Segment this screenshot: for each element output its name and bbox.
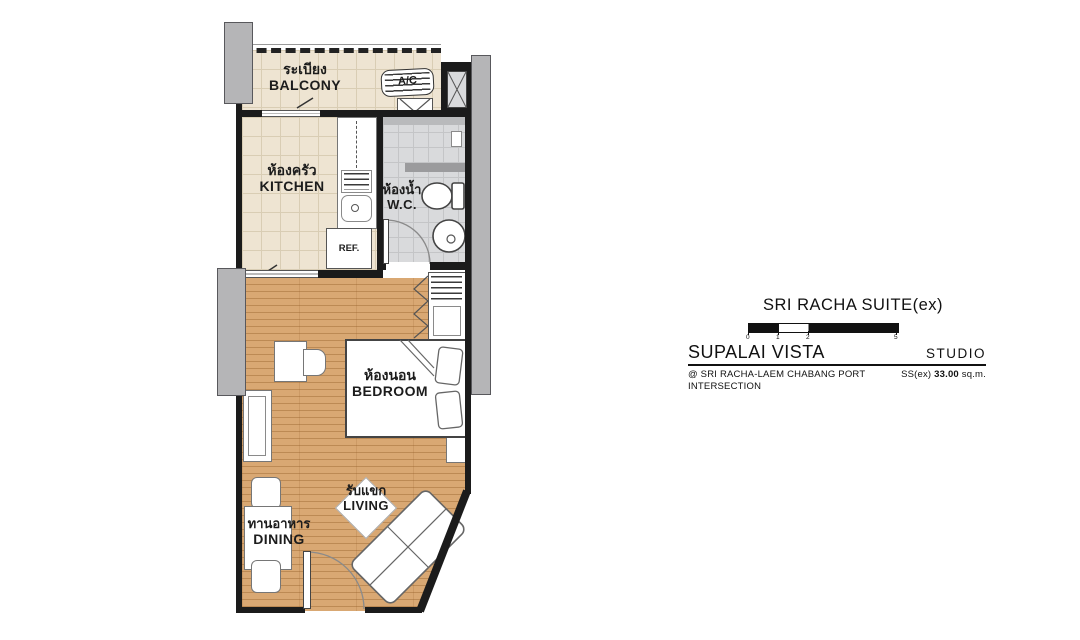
column-mid-left [217,268,246,396]
wall-kitchen-bottom [318,270,383,278]
bedroom-label-en: BEDROOM [348,384,432,400]
scale-tick-label-2: 2 [806,334,810,341]
dining-label-thai: ทานอาหาร [240,517,318,532]
kitchen-bedroom-window [242,270,318,278]
desk-chair [303,349,326,376]
shower-head [451,131,462,147]
wall-shaft-bottom [441,108,470,117]
living-label-en: LIVING [330,499,402,514]
area-label: SS(ex) [901,369,931,380]
balcony-door-window [262,110,320,117]
sink-drain [351,204,359,212]
living-label-thai: รับแขก [330,484,402,499]
wall-bottom-b [365,607,422,613]
dining-label: ทานอาหาร DINING [240,517,318,547]
balcony-label-en: BALCONY [250,78,360,94]
wall-bottom-a [237,607,305,613]
scale-bar: 0 1 2 5 [748,323,897,341]
column-top-left [224,22,253,104]
area-unit: sq.m. [962,369,986,380]
dining-chair-bottom [251,560,281,593]
ref-label: REF. [326,243,372,254]
bedroom-label-thai: ห้องนอน [348,368,432,384]
area-value: 33.00 [934,369,959,380]
kitchen-label-en: KITCHEN [242,179,342,195]
wc-label: ห้องน้ำ W.C. [376,183,428,212]
bedroom-label: ห้องนอน BEDROOM [348,368,432,399]
wc-partition [405,163,465,172]
wc-label-en: W.C. [376,198,428,213]
balcony-label: ระเบียง BALCONY [250,62,360,93]
living-label: รับแขก LIVING [330,484,402,513]
unit-type: STUDIO [926,346,986,361]
tall-cabinet-inner [248,396,266,456]
wall-wc-bottom-b [430,262,470,270]
scale-tick-label-1: 1 [776,334,780,341]
stove-grate [344,173,369,190]
scale-tick-label-0: 0 [746,334,750,341]
entry-door-leaf [303,551,311,609]
floorplan-page: ระเบียง BALCONY ห้องครัว KITCHEN ห้องน้ำ… [0,0,1080,640]
suite-title: SRI RACHA SUITE(ex) [738,296,968,315]
balcony-outline [242,44,441,45]
area-line: SS(ex) 33.00 sq.m. [901,369,986,380]
wc-shower-shadow [383,117,465,125]
dining-chair-top [251,477,281,509]
shaft-box [447,71,467,108]
location-line2: INTERSECTION [688,381,761,392]
column-strip-right [471,55,491,395]
wardrobe-shelf [433,306,461,336]
wardrobe-rail-slats [431,276,462,302]
scale-tick-label-5: 5 [894,334,898,341]
info-panel: SRI RACHA SUITE(ex) 0 1 2 5 SUPALAI VIST… [688,296,986,404]
kitchen-label-thai: ห้องครัว [242,163,342,179]
overhead-cabinet-dashes [356,121,357,168]
divider-rule [688,364,986,366]
balcony-label-thai: ระเบียง [250,62,360,78]
balcony-railing [242,48,441,53]
wc-door-leaf [383,219,389,264]
location-line1: @ SRI RACHA-LAEM CHABANG PORT [688,369,865,380]
wc-label-thai: ห้องน้ำ [376,183,428,198]
scale-bar-segments [748,323,899,333]
wall-balcony-kitchen-a [242,110,262,117]
project-name: SUPALAI VISTA [688,342,825,363]
kitchen-label: ห้องครัว KITCHEN [242,163,342,194]
dining-label-en: DINING [240,532,318,548]
